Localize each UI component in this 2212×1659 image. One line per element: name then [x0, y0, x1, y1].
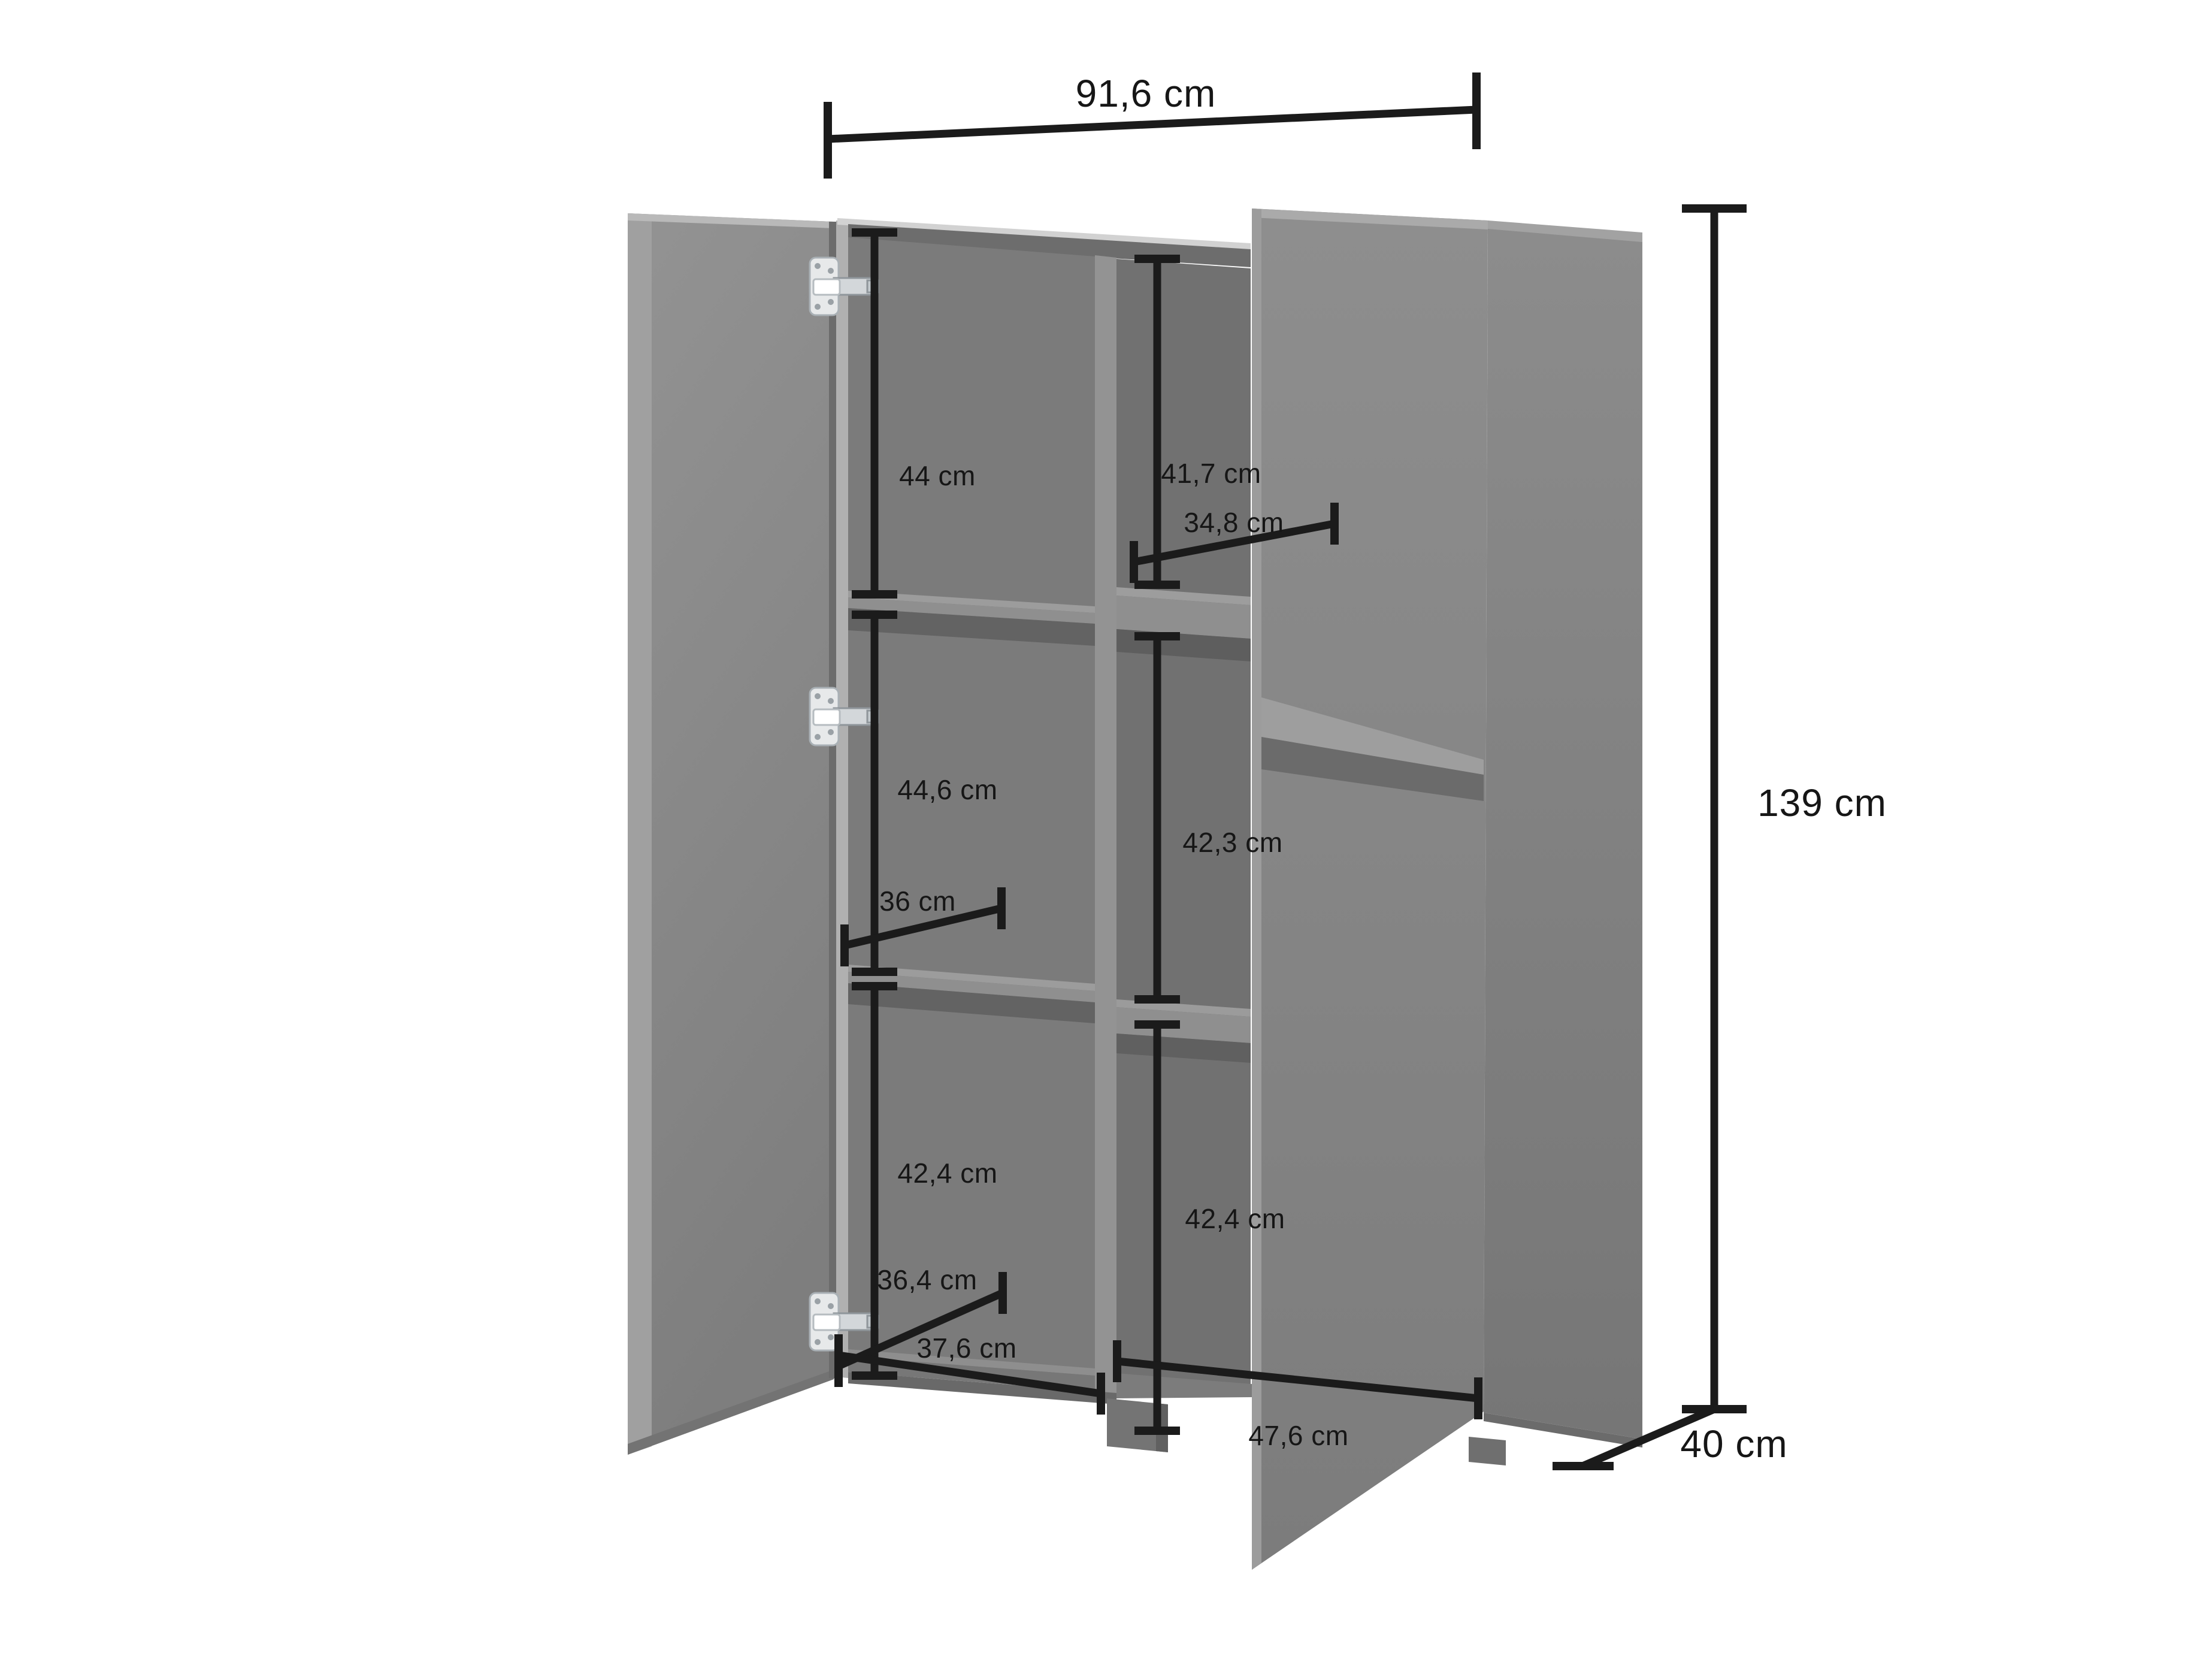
label-shelf-middle-depth: 36 cm — [879, 886, 956, 917]
left-door-edge-band — [628, 213, 652, 1455]
label-shelf-top-depth: 34,8 cm — [1184, 507, 1284, 538]
label-right-bottom: 42,4 cm — [1185, 1203, 1285, 1234]
label-overall-height: 139 cm — [1757, 781, 1887, 824]
diagram-canvas: 91,6 cm 139 cm 40 cm 44 cm 41,7 cm 34,8 … — [0, 0, 2212, 1659]
cabinet-foot-right — [1469, 1437, 1506, 1465]
label-overall-width: 91,6 cm — [1076, 72, 1217, 115]
label-right-middle: 42,3 cm — [1182, 827, 1282, 858]
right-door-edge-band — [1252, 208, 1261, 1570]
center-divider — [1095, 255, 1116, 1397]
interior-back-left — [848, 237, 1095, 1391]
label-left-middle: 44,6 cm — [897, 774, 997, 805]
label-bottom-left-width: 37,6 cm — [916, 1332, 1016, 1364]
right-side-panel — [1484, 229, 1642, 1439]
label-right-top: 41,7 cm — [1161, 458, 1261, 489]
left-door-panel — [628, 213, 834, 1455]
cabinet-dimension-diagram: 91,6 cm 139 cm 40 cm 44 cm 41,7 cm 34,8 … — [0, 0, 2212, 1659]
label-bottom-right-width: 47,6 cm — [1248, 1420, 1348, 1451]
label-left-bottom: 42,4 cm — [897, 1158, 997, 1189]
left-door-inner-seam — [829, 222, 836, 1379]
right-door-panel — [1252, 208, 1488, 1570]
label-overall-depth: 40 cm — [1680, 1422, 1787, 1465]
label-shelf-bottom-depth: 36,4 cm — [877, 1264, 977, 1295]
carcass-left-front-edge — [836, 220, 848, 1378]
label-left-top: 44 cm — [899, 460, 976, 491]
